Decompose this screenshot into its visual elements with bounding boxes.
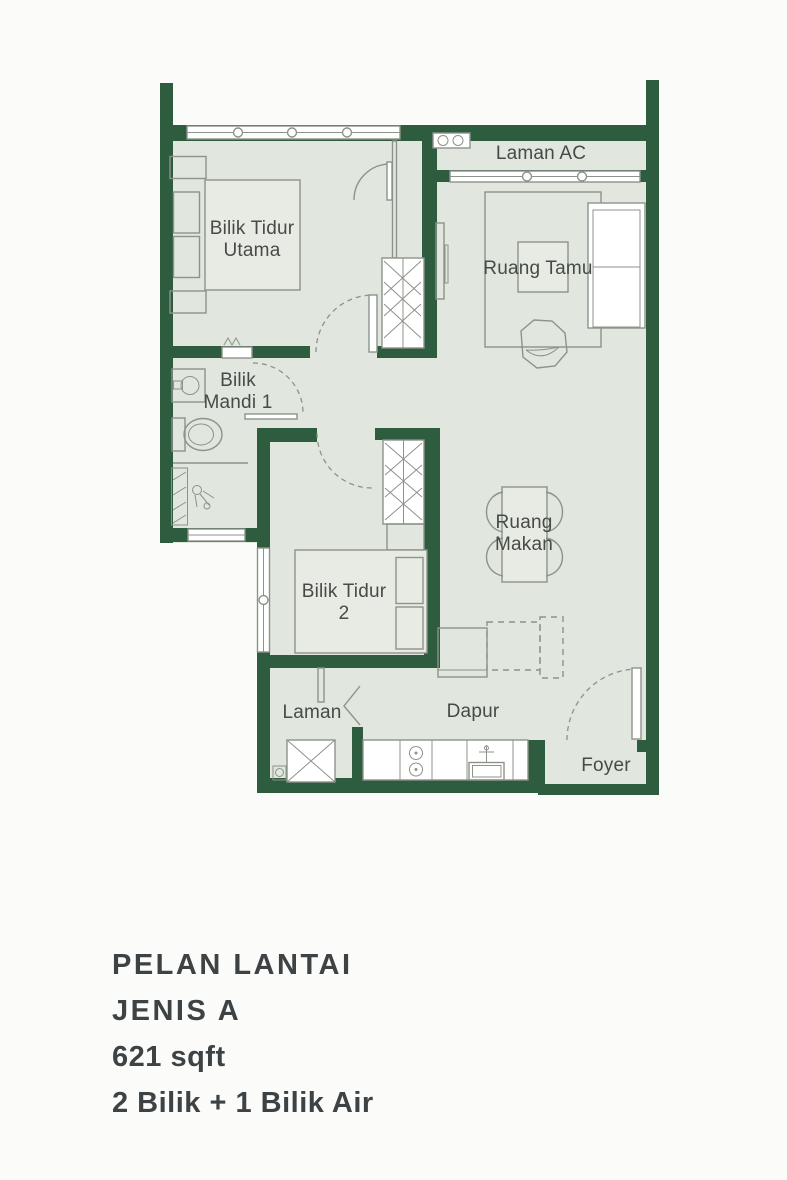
room-label-bilik-tidur-utama: Bilik Tidur Utama xyxy=(210,218,295,262)
window-bed2-west xyxy=(258,548,270,652)
room-label-dapur: Dapur xyxy=(447,701,500,723)
caption-unit-type: JENIS A xyxy=(112,988,374,1034)
caption-title: PELAN LANTAI xyxy=(112,942,374,988)
wall-laman-divider xyxy=(352,727,363,782)
window-bath-south xyxy=(188,529,245,541)
kitchen-counter xyxy=(363,740,528,780)
caption-config: 2 Bilik + 1 Bilik Air xyxy=(112,1080,374,1126)
washer-space xyxy=(287,740,335,782)
master-door-leaf xyxy=(369,295,377,352)
plan-caption: PELAN LANTAI JENIS A 621 sqft 2 Bilik + … xyxy=(112,942,374,1126)
wall-door-hinge-block xyxy=(637,740,649,752)
wall-bed2-south xyxy=(257,655,440,668)
ac-unit xyxy=(433,133,470,148)
room-label-ruang-makan: Ruang Makan xyxy=(495,512,553,556)
bed2-wardrobe xyxy=(383,440,424,524)
wall-bed2-north-a xyxy=(257,428,317,442)
sofa xyxy=(588,203,645,328)
floor-plan-drawing xyxy=(0,0,787,830)
master-wardrobe xyxy=(382,258,424,348)
bath-door-leaf xyxy=(245,414,297,419)
room-label-bilik-tidur-2: Bilik Tidur 2 xyxy=(302,581,387,625)
room-label-bilik-mandi-1: Bilik Mandi 1 xyxy=(204,370,273,414)
wall-east xyxy=(646,80,659,795)
room-label-laman: Laman xyxy=(282,702,341,724)
closet-door-leaf xyxy=(387,162,392,200)
room-label-ruang-tamu: Ruang Tamu xyxy=(483,258,592,280)
floor-plan: Bilik Tidur Utama Laman AC Ruang Tamu Bi… xyxy=(0,0,787,830)
window-lamanac xyxy=(450,171,640,182)
caption-area: 621 sqft xyxy=(112,1034,374,1080)
room-label-foyer: Foyer xyxy=(581,755,631,777)
entry-door-leaf xyxy=(632,668,641,739)
window-master-north xyxy=(187,126,400,139)
room-label-laman-ac: Laman AC xyxy=(496,143,586,165)
wall-foyer-south xyxy=(538,784,659,795)
